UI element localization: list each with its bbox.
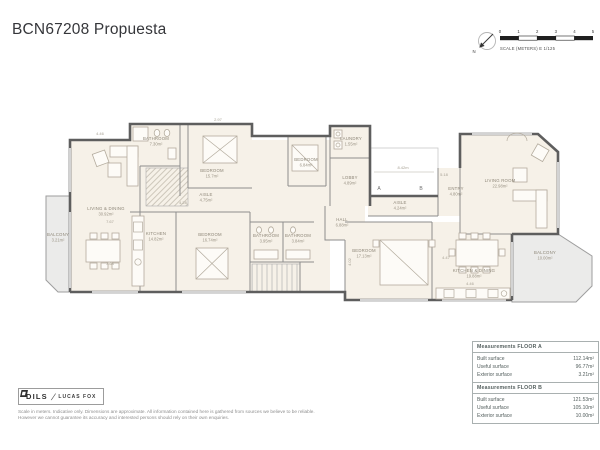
room-label-bathroom-a1: BATHROOM	[143, 136, 169, 141]
room-label-bedroom-b: BEDROOM	[352, 248, 376, 253]
room-area-aisle-b: 4.24m²	[394, 206, 407, 211]
dils-logo-icon	[19, 389, 29, 398]
row-label: Built surface	[477, 355, 505, 363]
dim-label: 4.28	[179, 200, 188, 205]
room-label-aisle-a: AISLE	[199, 192, 212, 197]
furniture-bed-b	[373, 240, 435, 285]
north-arrow-icon: N	[472, 33, 495, 55]
room-area-entry-b: 4.80m²	[450, 192, 463, 197]
row-value: 112.14m²	[573, 355, 594, 363]
stairs-hatch	[252, 264, 300, 292]
room-label-hall-b: HALL	[336, 217, 348, 222]
room-label-bedroom-a1: BEDROOM	[200, 168, 224, 173]
scale-bar: 0 1 2 3 4 5 SCALE (METERS) E 1/125	[499, 29, 595, 51]
row-value: 121.53m²	[573, 396, 594, 404]
measurements-floor-a: Measurements FLOOR A Built surface 112.1…	[473, 342, 598, 382]
room-label-laundry: LAUNDRY	[340, 136, 362, 141]
dim-label: 8.42m	[397, 165, 409, 170]
room-area-hall-b: 6.88m²	[336, 223, 349, 228]
scale-caption: SCALE (METERS) E 1/125	[500, 46, 556, 51]
room-area-aisle-a: 4.75m²	[200, 198, 213, 203]
dim-label: 2.97	[214, 117, 223, 122]
room-label-living-dining-a: LIVING & DINING	[87, 206, 125, 211]
room-area-bathroom-a2: 3.95m²	[260, 239, 273, 244]
room-label-entry-b: ENTRY	[448, 186, 464, 191]
room-area-balcony-a: 3.21m²	[52, 238, 65, 243]
row-value: 96.77m²	[576, 363, 594, 371]
north-label: N	[472, 49, 475, 54]
room-area-bathroom-a3: 3.84m²	[292, 239, 305, 244]
room-area-bedroom-b: 17.13m²	[356, 254, 372, 259]
room-label-bedroom-a2: BEDROOM	[198, 232, 222, 237]
balcony-a-floor	[46, 196, 70, 292]
room-area-bedroom-a3: 6.84m²	[300, 163, 313, 168]
room-area-bedroom-a2: 16.74m²	[202, 238, 218, 243]
dim-label: 4.46	[466, 281, 475, 286]
page: BCN67208 Propuesta N 0 1 2 3 4 5	[0, 0, 600, 450]
scale-tick: 0	[499, 29, 502, 34]
room-label-balcony-b: BALCONY	[534, 250, 556, 255]
room-area-bedroom-a1: 15.7m²	[206, 174, 219, 179]
room-label-living-b: LIVING ROOM	[485, 178, 516, 183]
room-area-living-dining-a: 30.92m²	[98, 212, 114, 217]
room-label-aisle-b: AISLE	[393, 200, 406, 205]
brand-logo: DILS / LUCAS FOX	[18, 388, 104, 405]
logo-divider: /	[51, 392, 56, 402]
row-label: Exterior surface	[477, 371, 512, 379]
scale-tick: 3	[555, 29, 558, 34]
logo-brand-text: DILS	[26, 392, 48, 401]
dim-label: 5.18	[440, 172, 449, 177]
room-area-balcony-b: 10.00m²	[537, 256, 553, 261]
disclaimer-line-2: However we cannot guarantee its accuracy…	[18, 415, 583, 421]
room-label-balcony-a: BALCONY	[47, 232, 69, 237]
room-label-bathroom-a3: BATHROOM	[285, 233, 311, 238]
room-label-lobby: LOBBY	[342, 175, 357, 180]
table-row: Useful surface 96.77m²	[477, 363, 594, 371]
dim-label: 3.68	[106, 261, 115, 266]
room-area-laundry: 1.55m²	[345, 142, 358, 147]
room-area-kitchen-a: 14.82m²	[148, 237, 164, 242]
room-label-kitchen-a: KITCHEN	[146, 231, 166, 236]
furniture-bed-a2	[196, 248, 228, 279]
disclaimer: Scale in meters. Indicative only. Dimens…	[18, 409, 583, 422]
furniture-kitchen-b	[436, 288, 510, 299]
room-area-bathroom-a1: 7.30m²	[150, 142, 163, 147]
row-value: 3.21m²	[578, 371, 594, 379]
furniture-kitchen-a	[132, 216, 144, 286]
measurements-floor-b-title: Measurements FLOOR B	[473, 382, 598, 394]
scale-tick: 4	[573, 29, 576, 34]
room-label-bathroom-a2: BATHROOM	[253, 233, 279, 238]
table-row: Exterior surface 3.21m²	[477, 371, 594, 379]
room-area-lobby: 4.89m²	[344, 181, 357, 186]
room-area-kitchen-dining-b: 19.88m²	[466, 274, 482, 279]
logo-partner-text: LUCAS FOX	[58, 394, 96, 400]
scale-tick: 2	[536, 29, 539, 34]
dim-label: 4.46	[96, 131, 105, 136]
dim-label: 4.47	[442, 255, 451, 260]
scale-tick: 1	[517, 29, 520, 34]
scale-tick: 5	[592, 29, 595, 34]
dim-label: 7.67	[106, 219, 115, 224]
dim-label: 4.02	[347, 257, 352, 266]
furniture-bed-a1	[203, 136, 237, 163]
table-row: Built surface 121.53m²	[477, 396, 594, 404]
room-label-bedroom-a3: BEDROOM	[294, 157, 318, 162]
balcony-b-floor	[512, 234, 592, 302]
room-label-kitchen-dining-b: KITCHEN & DINING	[453, 268, 496, 273]
measurements-floor-a-title: Measurements FLOOR A	[473, 342, 598, 353]
row-label: Built surface	[477, 396, 505, 404]
row-label: Useful surface	[477, 363, 509, 371]
table-row: Built surface 112.14m²	[477, 355, 594, 363]
room-area-living-b: 22.98m²	[492, 184, 508, 189]
